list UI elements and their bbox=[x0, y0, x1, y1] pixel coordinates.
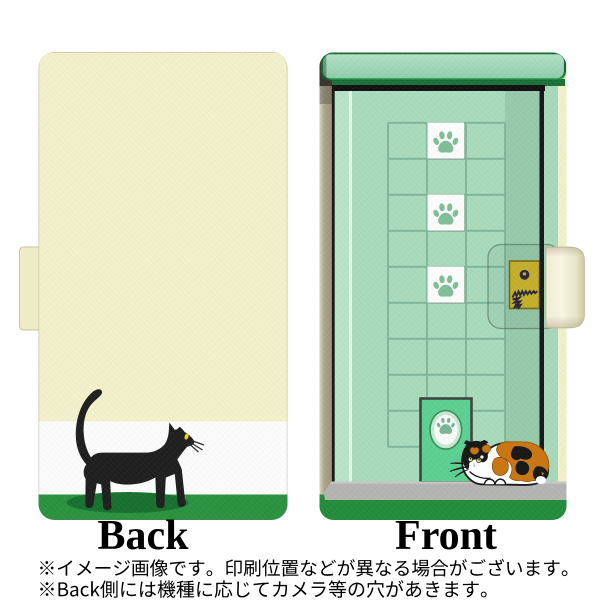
svg-text:Front: Front bbox=[395, 513, 497, 559]
svg-text:Back: Back bbox=[97, 513, 189, 559]
